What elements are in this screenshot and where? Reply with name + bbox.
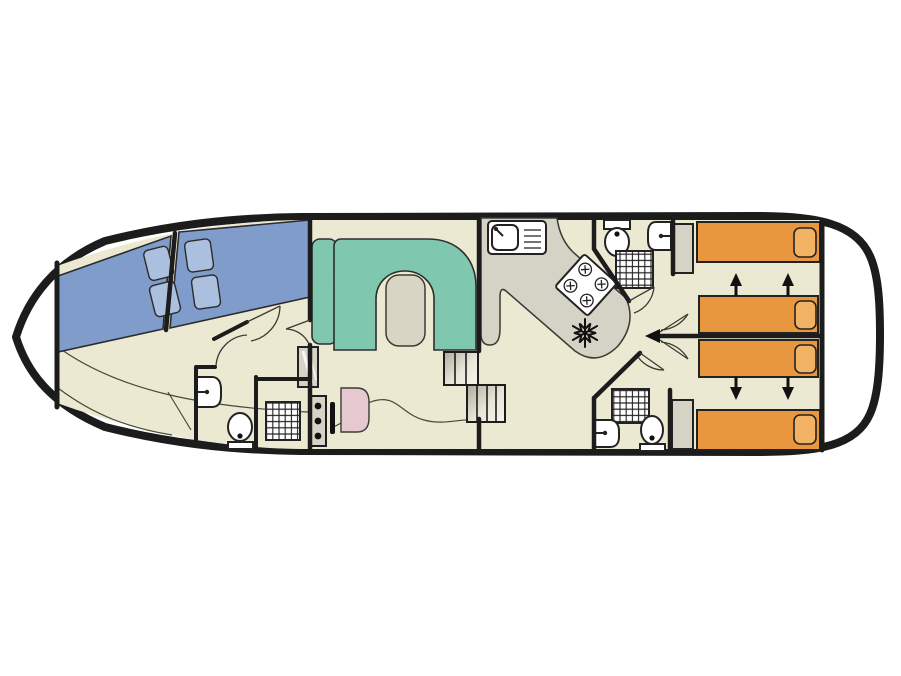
- bed-pillow: [794, 415, 816, 444]
- toilet-base: [228, 442, 253, 449]
- console-knob: [315, 418, 322, 425]
- console-knob: [315, 403, 322, 410]
- helm-seat: [341, 388, 369, 432]
- console-knob: [315, 433, 322, 440]
- berth-pillow: [191, 274, 221, 309]
- shower-grid: [266, 402, 300, 440]
- bed-pillow: [794, 228, 816, 257]
- shower-grid: [612, 389, 649, 423]
- toilet-base: [640, 444, 665, 451]
- galley-sink: [488, 221, 546, 254]
- bed-pillow: [795, 345, 816, 373]
- boat-floor-plan: [0, 0, 901, 676]
- floor-plan-canvas: [0, 0, 901, 676]
- bed-pillow: [795, 301, 816, 329]
- steering-wheel-icon: [330, 402, 335, 434]
- wardrobe: [672, 400, 693, 449]
- saloon-table: [386, 275, 425, 346]
- shower-grid: [616, 251, 653, 288]
- berth-pillow: [184, 238, 214, 272]
